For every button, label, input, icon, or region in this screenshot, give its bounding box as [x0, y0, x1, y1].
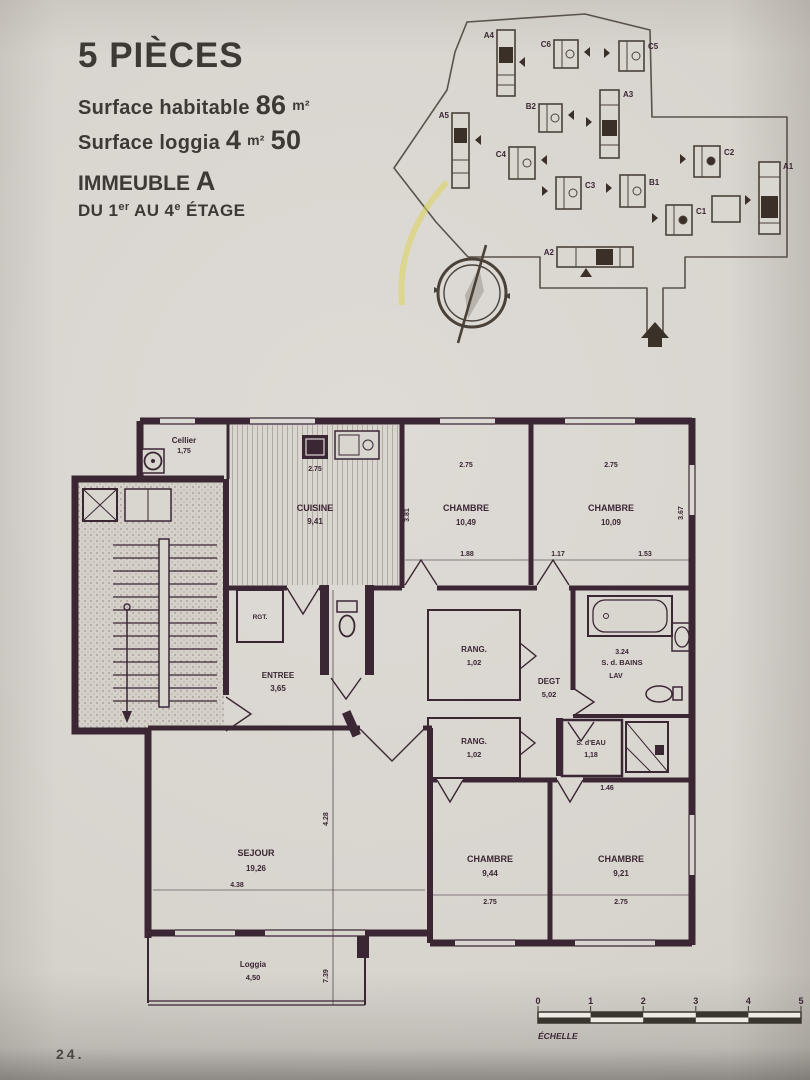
- scale-3: 3: [693, 996, 698, 1006]
- page-number: 24.: [56, 1046, 84, 1062]
- scanned-floorplan-page: 5 PIÈCES Surface habitable 86 m² Surface…: [0, 0, 810, 1080]
- surface-habitable-label: Surface habitable: [78, 97, 250, 119]
- yellow-highlighter-arc: [401, 182, 447, 305]
- header-block: 5 PIÈCES Surface habitable 86 m² Surface…: [78, 36, 310, 221]
- building-label-c4: C4: [496, 150, 507, 159]
- building-label-c2: C2: [724, 148, 735, 157]
- room-label-rang2: RANG.: [461, 737, 487, 746]
- building-label-b2: B2: [526, 102, 537, 111]
- a2-entry-arrow-icon: [580, 268, 592, 277]
- scale-0: 0: [535, 996, 540, 1006]
- compass-icon: [434, 245, 510, 343]
- c1-entry-arrow-icon: [652, 213, 658, 223]
- room-area-chambre1: 10,49: [456, 518, 477, 527]
- scale-numbers: 0 1 2 3 4 5: [535, 996, 803, 1006]
- bidet-icon: [646, 686, 682, 702]
- building-a3: [586, 90, 619, 158]
- room-area-chambre3: 9,44: [482, 869, 498, 878]
- dim-7-39: 7.39: [323, 969, 330, 983]
- building-label-c5: C5: [648, 42, 659, 51]
- wc-door: [331, 678, 361, 699]
- building-a5: [452, 113, 481, 188]
- sink-icon: [335, 431, 379, 459]
- dim-4-38: 4.38: [230, 882, 244, 889]
- building-c2: [680, 146, 720, 177]
- building-label-c3: C3: [585, 181, 596, 190]
- etage-p1: DU 1: [78, 201, 118, 220]
- a3-entry-arrow-icon: [586, 117, 592, 127]
- c5-entry-arrow-icon: [604, 48, 610, 58]
- b1-entry-arrow-icon: [606, 183, 612, 193]
- water-heater-icon: [142, 449, 164, 473]
- stair-hall: [75, 479, 226, 731]
- dim-3-67: 3.67: [678, 506, 685, 520]
- building-label-a1: A1: [783, 162, 794, 171]
- bathroom-dim: 3.24: [615, 649, 629, 656]
- kitchen-door: [287, 588, 319, 614]
- building-a1: [745, 162, 780, 234]
- chambre1-door: [405, 560, 437, 585]
- surface-loggia-unit: m²: [247, 132, 265, 148]
- building-label-a5: A5: [439, 111, 450, 120]
- dim-1-88: 1.88: [460, 551, 474, 558]
- room-area-rang1: 1,02: [467, 658, 482, 667]
- a1-highlight: [761, 196, 778, 218]
- a2-highlight: [596, 249, 613, 265]
- room-area-chambre2: 10,09: [601, 518, 622, 527]
- room-label-cellier: Cellier: [172, 436, 196, 445]
- site-plan-diagram: A4 C6 C5 A5 B2 A3 C4 C3 B1 C2 C1 A1 A2: [380, 5, 810, 365]
- dim-kitchen-top: 2.75: [308, 466, 322, 473]
- building-label-b1: B1: [649, 178, 660, 187]
- a1-entry-arrow-icon: [745, 195, 751, 205]
- surface-loggia-value: 4: [226, 125, 241, 155]
- shower-room: [556, 718, 668, 776]
- room-area-sejour: 19,26: [246, 864, 267, 873]
- etage-p2: AU 4: [130, 201, 175, 220]
- building-label-a3: A3: [623, 90, 634, 99]
- room-label-bains: S. d. BAINS: [601, 658, 642, 667]
- dim-chambre2-top: 2.75: [604, 462, 618, 469]
- room-label-rgt: RGT.: [253, 614, 268, 621]
- building-c6: [554, 40, 590, 68]
- wc-room: [320, 585, 374, 699]
- room-label-cuisine: CUISINE: [297, 503, 334, 513]
- scale-4: 4: [746, 996, 751, 1006]
- toilet-icon: [337, 601, 357, 637]
- room-area-entree: 3,65: [270, 684, 286, 693]
- chambre3-door: [437, 780, 463, 802]
- room-label-chambre3: CHAMBRE: [467, 854, 513, 864]
- c2-entry-arrow-icon: [680, 154, 686, 164]
- building-b2: [539, 104, 574, 132]
- scale-1: 1: [588, 996, 593, 1006]
- room-area-loggia: 4,50: [246, 973, 261, 982]
- b2-entry-arrow-icon: [568, 110, 574, 120]
- building-a4: [497, 30, 525, 96]
- bathroom-door: [573, 688, 594, 716]
- bathtub-icon: [588, 596, 672, 636]
- dim-1-17: 1.17: [551, 551, 565, 558]
- room-sub-bains: LAV: [609, 673, 623, 680]
- rangement-closets: [428, 610, 536, 778]
- room-label-loggia: Loggia: [240, 960, 267, 969]
- building-label-c1: C1: [696, 207, 707, 216]
- immeuble-value: A: [196, 166, 216, 196]
- sejour-door: [360, 729, 424, 761]
- room-area-rang2: 1,02: [467, 750, 482, 759]
- building-label-a4: A4: [484, 31, 495, 40]
- immeuble-label: IMMEUBLE: [78, 172, 190, 195]
- room-area-cellier: 1,75: [177, 448, 191, 455]
- dim-chambre4-bottom: 2.75: [614, 899, 628, 906]
- building-c3: [542, 177, 581, 209]
- dim-chambre3-bottom: 2.75: [483, 899, 497, 906]
- surface-loggia-label: Surface loggia: [78, 132, 220, 154]
- surface-loggia-line: Surface loggia 4 m² 50: [78, 125, 310, 156]
- building-unlabeled: [712, 196, 740, 222]
- a4-highlight: [499, 47, 513, 63]
- scale-5: 5: [798, 996, 803, 1006]
- surface-habitable-line: Surface habitable 86 m²: [78, 90, 310, 121]
- c6-entry-arrow-icon: [584, 47, 590, 57]
- c4-entry-arrow-icon: [541, 155, 547, 165]
- surface-loggia-extra: 50: [271, 125, 302, 155]
- room-label-chambre1: CHAMBRE: [443, 503, 489, 513]
- scale-segments: [538, 1006, 801, 1023]
- building-c4: [509, 147, 547, 179]
- site-entrance-arrow-icon: [641, 322, 669, 347]
- a3-highlight: [602, 120, 617, 136]
- room-area-degt: 5,02: [542, 690, 557, 699]
- room-label-sdeau: S. d'EAU: [576, 740, 605, 747]
- room-label-entree: ENTREE: [262, 671, 295, 680]
- etage-sup1: er: [118, 201, 129, 213]
- loggia: [148, 936, 369, 1005]
- room-label-sejour: SEJOUR: [237, 848, 275, 858]
- etage-p3: ÉTAGE: [181, 201, 245, 220]
- chambre4-door: [557, 780, 583, 802]
- surface-habitable-value: 86: [256, 90, 287, 120]
- etage-line: DU 1er AU 4e ÉTAGE: [78, 201, 310, 221]
- immeuble-line: IMMEUBLE A: [78, 166, 310, 197]
- shower-room-door: [568, 722, 594, 741]
- room-area-chambre4: 9,21: [613, 869, 629, 878]
- room-label-chambre4: CHAMBRE: [598, 854, 644, 864]
- scale-label: ÉCHELLE: [538, 1031, 578, 1041]
- dim-1-53: 1.53: [638, 551, 652, 558]
- shower-icon: [626, 722, 668, 772]
- building-label-c6: C6: [541, 40, 552, 49]
- a4-entry-arrow-icon: [519, 57, 525, 67]
- chambre2-door: [537, 560, 569, 585]
- building-c5: [604, 41, 644, 71]
- building-a2: [557, 247, 633, 277]
- scale-bar: 0 1 2 3 4 5 ÉCHELLE: [530, 992, 810, 1044]
- room-area-cuisine: 9,41: [307, 517, 323, 526]
- room-label-degt: DEGT: [538, 677, 560, 686]
- surface-habitable-unit: m²: [292, 97, 310, 113]
- scale-2: 2: [641, 996, 646, 1006]
- page-title: 5 PIÈCES: [78, 36, 310, 76]
- dim-3-81: 3.81: [404, 508, 411, 522]
- doors: [226, 560, 583, 802]
- dim-4-28: 4.28: [323, 812, 330, 826]
- bathroom: [573, 596, 692, 716]
- building-c1: [652, 205, 692, 235]
- room-label-rang1: RANG.: [461, 645, 487, 654]
- room-label-chambre2: CHAMBRE: [588, 503, 634, 513]
- building-label-a2: A2: [544, 248, 555, 257]
- a5-highlight: [454, 128, 467, 143]
- door-leaf: [342, 710, 361, 737]
- room-area-sdeau: 1,18: [584, 752, 598, 759]
- dim-1-46: 1.46: [600, 785, 614, 792]
- c3-entry-arrow-icon: [542, 186, 548, 196]
- dim-chambre1-top: 2.75: [459, 462, 473, 469]
- floor-plan: Cellier 1,75 CUISINE 9,41 CHAMBRE 10,49 …: [65, 395, 710, 1020]
- building-b1: [606, 175, 645, 207]
- a5-entry-arrow-icon: [475, 135, 481, 145]
